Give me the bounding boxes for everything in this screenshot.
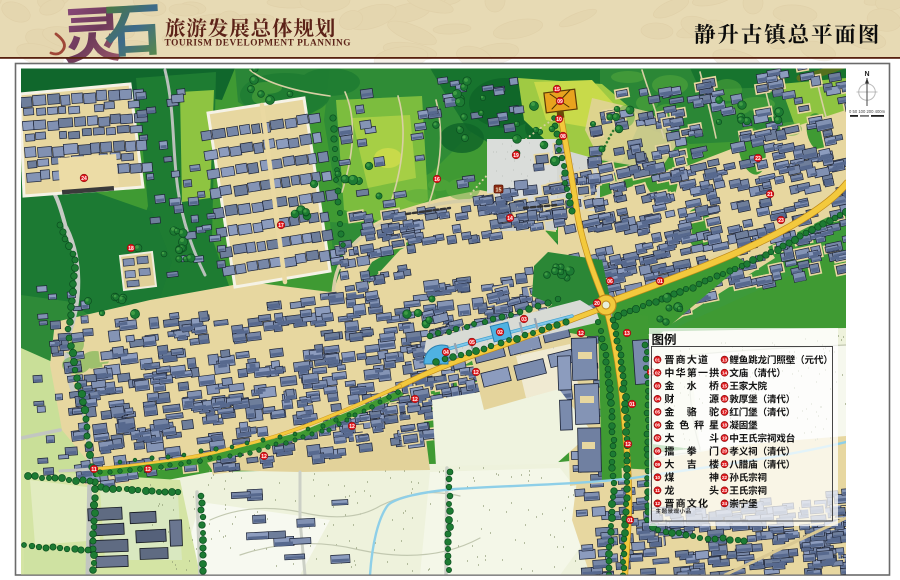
svg-text:17: 17 bbox=[278, 223, 284, 229]
svg-text:11: 11 bbox=[655, 488, 660, 493]
svg-text:12: 12 bbox=[625, 442, 631, 448]
svg-text:16: 16 bbox=[722, 396, 728, 401]
svg-text:12: 12 bbox=[349, 424, 355, 430]
svg-text:11: 11 bbox=[91, 467, 97, 473]
svg-text:07: 07 bbox=[655, 436, 661, 441]
svg-text:19: 19 bbox=[722, 436, 728, 441]
svg-text:12: 12 bbox=[473, 370, 479, 376]
svg-text:22: 22 bbox=[722, 475, 728, 480]
svg-text:23: 23 bbox=[778, 218, 784, 224]
svg-text:13: 13 bbox=[624, 331, 630, 337]
svg-text:TOURISM DEVELOPMENT PLANNING: TOURISM DEVELOPMENT PLANNING bbox=[165, 39, 352, 49]
svg-text:23: 23 bbox=[722, 488, 728, 493]
svg-text:04: 04 bbox=[443, 350, 449, 356]
svg-text:02: 02 bbox=[655, 370, 661, 375]
svg-text:18: 18 bbox=[722, 423, 728, 428]
svg-text:12: 12 bbox=[412, 397, 418, 403]
svg-text:03: 03 bbox=[655, 383, 661, 388]
svg-text:01: 01 bbox=[627, 518, 633, 524]
svg-text:04: 04 bbox=[655, 396, 661, 401]
svg-text:01: 01 bbox=[655, 357, 661, 362]
svg-text:16: 16 bbox=[434, 177, 440, 183]
svg-text:06: 06 bbox=[655, 423, 661, 428]
svg-text:12: 12 bbox=[655, 501, 661, 506]
svg-text:21: 21 bbox=[722, 462, 728, 467]
svg-text:05: 05 bbox=[655, 410, 661, 415]
svg-text:08: 08 bbox=[655, 449, 661, 454]
svg-text:08: 08 bbox=[560, 134, 566, 140]
svg-text:19: 19 bbox=[513, 153, 519, 159]
svg-text:15: 15 bbox=[722, 383, 728, 388]
svg-text:20: 20 bbox=[722, 449, 728, 454]
svg-text:12: 12 bbox=[578, 331, 584, 337]
svg-text:12: 12 bbox=[145, 467, 151, 473]
svg-text:14: 14 bbox=[722, 370, 728, 375]
svg-text:12: 12 bbox=[261, 454, 267, 460]
svg-text:10: 10 bbox=[556, 117, 562, 123]
svg-text:05: 05 bbox=[469, 340, 475, 346]
svg-text:15: 15 bbox=[554, 87, 560, 93]
svg-text:24: 24 bbox=[81, 176, 87, 182]
svg-text:20: 20 bbox=[594, 301, 600, 307]
svg-text:10: 10 bbox=[655, 475, 661, 480]
svg-text:17: 17 bbox=[722, 410, 728, 415]
svg-text:13: 13 bbox=[722, 357, 728, 362]
svg-text:03: 03 bbox=[521, 317, 527, 323]
svg-text:09: 09 bbox=[557, 99, 563, 105]
svg-text:01: 01 bbox=[657, 279, 663, 285]
svg-text:21: 21 bbox=[767, 192, 773, 198]
svg-text:N: N bbox=[864, 71, 869, 78]
svg-text:06: 06 bbox=[607, 279, 613, 285]
svg-text:02: 02 bbox=[497, 330, 503, 336]
svg-text:15: 15 bbox=[496, 187, 502, 193]
svg-text:24: 24 bbox=[722, 501, 728, 506]
svg-text:18: 18 bbox=[128, 246, 134, 252]
svg-text:09: 09 bbox=[655, 462, 661, 467]
svg-text:22: 22 bbox=[755, 156, 761, 162]
svg-text:14: 14 bbox=[507, 216, 513, 222]
svg-text:0 50 100 200 400m: 0 50 100 200 400m bbox=[849, 109, 886, 114]
svg-text:01: 01 bbox=[629, 402, 635, 408]
